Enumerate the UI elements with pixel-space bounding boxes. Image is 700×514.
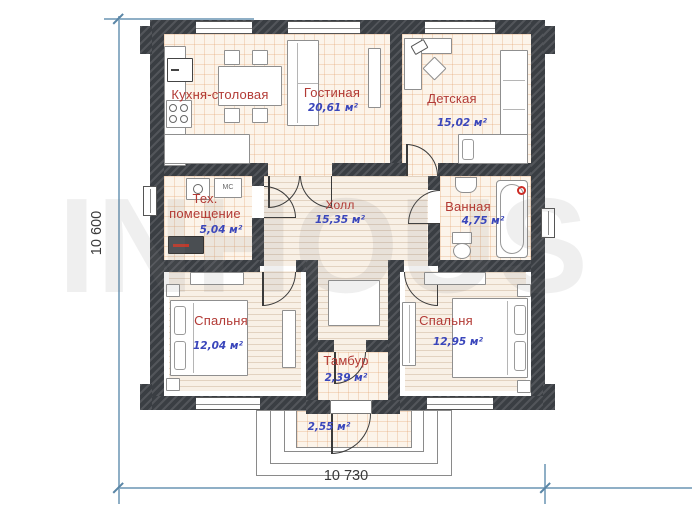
pilaster-top-left — [140, 26, 152, 54]
dimension-line-horizontal — [118, 487, 692, 489]
bedroom2-shelf — [424, 272, 486, 285]
stove-icon — [166, 100, 192, 128]
entry-door-leaf — [331, 414, 333, 454]
room-label-hall: Холл — [305, 199, 375, 212]
room-label-vestibule: Тамбур — [306, 354, 386, 369]
room-label-bath: Ванная — [432, 200, 504, 215]
wall-v1 — [390, 34, 402, 163]
toilet-bowl-icon — [453, 243, 471, 259]
bedroom1-bed — [170, 300, 248, 376]
wall-h1b — [332, 163, 406, 176]
room-label-child: Детская — [412, 92, 492, 107]
chair-icon — [224, 108, 240, 123]
room-area-living: 20,61 м² — [297, 102, 369, 114]
room-label-bedroom1: Спальня — [181, 314, 261, 329]
chair-icon — [252, 108, 268, 123]
kitchen-window — [196, 21, 252, 34]
room-area-tech: 5,04 м² — [182, 224, 260, 236]
wall-h2a — [164, 260, 260, 272]
boiler-label-stripe — [173, 244, 189, 247]
wardrobe — [500, 50, 528, 138]
living-window — [288, 21, 360, 34]
nightstand — [517, 380, 531, 393]
wardrobe — [402, 302, 416, 366]
wall-h3b — [366, 340, 388, 352]
room-area-child: 15,02 м² — [422, 117, 502, 129]
dimension-width-label: 10 730 — [306, 468, 386, 484]
child-door-leaf — [406, 144, 408, 176]
fridge-icon — [167, 58, 193, 82]
bathroom-vent-window — [541, 208, 555, 238]
room-area-bedroom1: 12,04 м² — [178, 340, 258, 352]
wall-vestibule-bottom-left — [306, 400, 330, 414]
dimension-height-label: 10 600 — [89, 203, 105, 263]
wall-v3a — [428, 176, 440, 190]
kitchen-counter-bottom — [164, 134, 250, 164]
room-area-porch: 2,55 м² — [290, 421, 368, 433]
room-label-kitchen: Кухня-столовая — [160, 88, 280, 103]
bathroom-door-leaf — [408, 223, 440, 225]
wall-h2d — [438, 260, 531, 272]
wall-v2a — [252, 176, 264, 186]
pilaster-bottom-right — [543, 384, 555, 410]
nightstand — [166, 378, 180, 391]
wall-vestibule-bottom-right — [372, 400, 400, 414]
chair-icon — [252, 50, 268, 65]
child-bed — [458, 134, 528, 164]
boiler — [168, 236, 204, 254]
tech-vent-window — [143, 186, 157, 216]
room-label-bedroom2: Спальня — [406, 314, 486, 329]
room-label-tech: Тех. помещение — [164, 192, 246, 221]
room-area-bedroom2: 12,95 м² — [418, 336, 498, 348]
pilaster-bottom-left — [140, 384, 152, 410]
wall-h3a — [318, 340, 334, 352]
bedroom2-window — [427, 397, 493, 410]
dimension-line-vertical — [118, 16, 120, 504]
floor-plan: МС INHOUS Кухня-столовая Гостиная 20,61 … — [0, 0, 700, 514]
room-area-bath: 4,75 м² — [448, 215, 518, 227]
nightstand — [517, 284, 531, 297]
room-area-vestibule: 2,39 м² — [307, 372, 385, 384]
wall-h1c — [438, 163, 531, 176]
nightstand — [166, 284, 180, 297]
room-label-living: Гостиная — [292, 86, 372, 101]
bedroom1-window — [196, 397, 260, 410]
dimension-extension-top — [104, 18, 254, 20]
room-area-hall: 15,35 м² — [303, 214, 377, 226]
bedroom1-door-leaf — [262, 272, 264, 306]
sink-icon — [455, 177, 477, 193]
entry-door-sill — [330, 400, 372, 414]
corridor-cabinet — [328, 280, 380, 326]
tech-door-leaf — [264, 217, 296, 219]
dresser — [282, 310, 296, 368]
towel-ring-icon — [517, 186, 526, 195]
chair-icon — [224, 50, 240, 65]
wall-v5 — [388, 260, 400, 414]
child-window — [425, 21, 495, 34]
dimension-extension-right — [544, 464, 546, 504]
pilaster-top-right — [543, 26, 555, 54]
wall-v4 — [306, 260, 318, 414]
bedroom1-shelf — [190, 272, 244, 285]
